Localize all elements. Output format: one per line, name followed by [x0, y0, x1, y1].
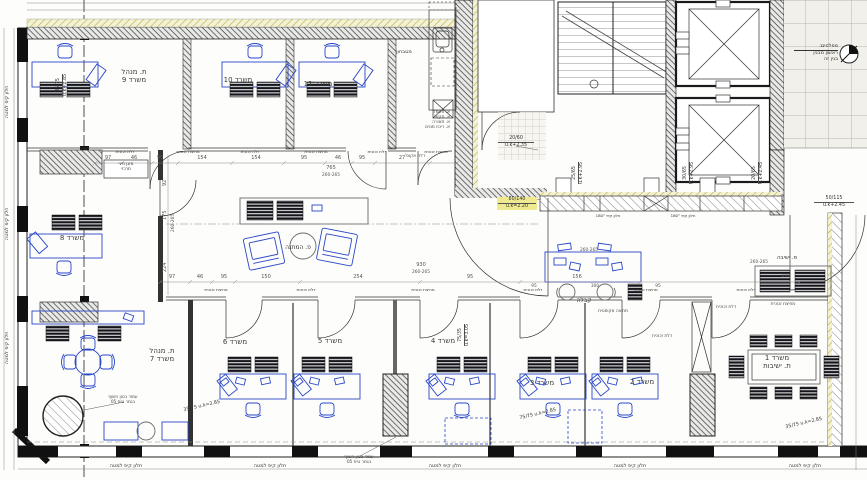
dim-top-6: 95 [292, 156, 316, 162]
lintel-right-wall: 50/115 u.k+2.45 [814, 196, 854, 209]
dim-bot-7: 156 [565, 275, 589, 281]
band-window-note-2: חלון קיפ 180° [660, 214, 706, 219]
furniture-bottom-offices [217, 357, 658, 418]
lintel-core-1: 25/65 u.k+2.95 [572, 162, 585, 184]
dim-reception-width: 300 [580, 284, 610, 289]
tilt-window-note-left-3: חלון קיפ למטה [5, 331, 11, 364]
dim-top-5: 154 [244, 156, 268, 162]
front-tag-6: מחיצת זכוכית [408, 150, 464, 155]
dim-top-3: 95 [148, 156, 172, 162]
room-label-office5: משרד 5 [305, 337, 355, 345]
glass-door-note-1: דלת זכוכית [642, 334, 682, 339]
dim-bot-4: 150 [254, 275, 278, 281]
dim-top-range: 260-265 [314, 173, 348, 178]
floor-plan: ת. מנהל משרד 9 משרד 10 משרד 11 מטבחון מש… [0, 0, 867, 480]
room-label-waiting: פ. המתנה [270, 244, 326, 251]
column-note-2: עמוד בטון חשוף בגמר טיח 05 [96, 395, 150, 405]
room-label-office2: משרד 2 [618, 378, 666, 386]
dim-top-8: 95 [350, 156, 374, 162]
dim-reception-95b: 95 [648, 284, 668, 289]
furniture-top-offices [32, 44, 373, 98]
front-tag-7: מחיצת זכוכית [188, 288, 244, 293]
dim-top-1: 97 [96, 156, 120, 162]
dim-left-1: 92 [163, 180, 169, 186]
dim-bench-range: 260-265 [742, 260, 776, 265]
room-label-office6: משרד 6 [210, 338, 260, 346]
room-label-office8: משרד 8 [46, 234, 98, 242]
lintel-kitchen-pass: 20/60 u.k+2.35 [498, 136, 534, 149]
waiting-furniture [240, 198, 368, 270]
dim-bottom-range: 260-265 [404, 270, 438, 275]
dim-top-2: 46 [122, 156, 146, 162]
dim-bench-depth: 210 [776, 274, 796, 279]
tilt-window-note-bottom-3: חלון קיפ למטה [415, 464, 475, 470]
lobby-tiles [784, 0, 867, 148]
office8-furniture [27, 215, 102, 276]
lintel-office4-door: 75/35 u.k=3.05 [458, 324, 471, 346]
column-note-1: עמוד בטון חשוף בגמר טיח 05 [332, 455, 386, 465]
tilt-window-note-bottom-1: חלון קיפ למטה [96, 464, 156, 470]
front-tag-9: מחיצת זכוכית [395, 288, 451, 293]
dim-bot-6: 95 [458, 275, 482, 281]
dim-bot-3: 95 [212, 275, 236, 281]
dim-left-range: 260-265 [171, 214, 176, 232]
room-label-reception: קבלה [562, 297, 606, 304]
room-label-office9: ת. מנהל משרד 9 [108, 68, 160, 85]
lintel-core-2: 30/65 u.k+2.95 [683, 162, 696, 184]
dim-left-3: 224 [163, 262, 169, 272]
glass-partition-note-bench: מחיצת זכוכית [758, 302, 808, 307]
lintel-left-wall: 35/75 u.k+2.85 [56, 74, 69, 96]
lintel-main-entry: 80/140 u.k=2.20 [497, 197, 537, 210]
room-label-office7: ת. מנהל משרד 7 [138, 347, 186, 364]
lintel-lobby-door: 20/65 u.k+2.45 [752, 162, 765, 184]
acoustic-partition-note: מחיצה אקוסטית [588, 309, 638, 314]
dim-left-2: 175 [163, 210, 169, 220]
dim-reception-95a: 95 [524, 284, 544, 289]
front-tag-3: דלת זכוכית [222, 150, 278, 155]
dim-top-9: 27 [390, 156, 414, 162]
dim-bot-5: 254 [346, 275, 370, 281]
core-cabinet-band [540, 196, 782, 211]
front-tag-2: מחיצת זכוכית [160, 150, 216, 155]
dim-bottom-total: 930 [406, 263, 436, 269]
dim-bot-2: 46 [188, 275, 212, 281]
room-label-kitchenette: מטבחון [384, 50, 424, 56]
room-label-office11: משרד 11 [290, 80, 346, 88]
levels-note: מפלסים: ראשון מבנין בנין זה [794, 44, 838, 63]
room-label-meeting: משרד 1 ת. ישיבות [752, 354, 802, 371]
round-column [43, 396, 83, 436]
ac-unit-note: מזגן מיני מרכזי [106, 162, 146, 172]
front-tag-12: דלת זכוכית [718, 288, 774, 293]
room-label-office10: משרד 10 [210, 76, 266, 84]
dim-bot-1: 97 [160, 275, 184, 281]
dim-top-4: 154 [190, 156, 214, 162]
building-core [455, 0, 784, 215]
bottom-office-walls [27, 297, 828, 446]
north-arrow-icon [840, 45, 858, 63]
tilt-window-note-left-1: חלון קיפ למטה [5, 85, 11, 118]
front-tag-8: דלת זכוכית [278, 288, 334, 293]
tilt-window-note-bottom-2: חלון קיפ למטה [240, 464, 300, 470]
office7-furniture [32, 311, 144, 389]
electrical-closets-note: א. חשמל א. תקש' א. תאורה א. ריכוז מונים [400, 110, 450, 130]
dim-top-total: 765 [316, 166, 346, 172]
dim-top-7: 46 [326, 156, 350, 162]
tilt-window-note-bottom-4: חלון קיפ למטה [600, 464, 660, 470]
elevator-shaft-1 [676, 0, 770, 88]
glass-door-note-2: דלת זכוכית [706, 305, 746, 310]
band-window-note-1: חלון קיפ 180° [585, 214, 631, 219]
room-label-office3: משרד 3 [518, 379, 566, 387]
tilt-window-note-bottom-5: חלון קיפ למטה [775, 464, 835, 470]
dim-reception-range: 260-265 [572, 248, 606, 253]
tilt-window-note-left-2: חלון קיפ למטה [5, 207, 11, 240]
